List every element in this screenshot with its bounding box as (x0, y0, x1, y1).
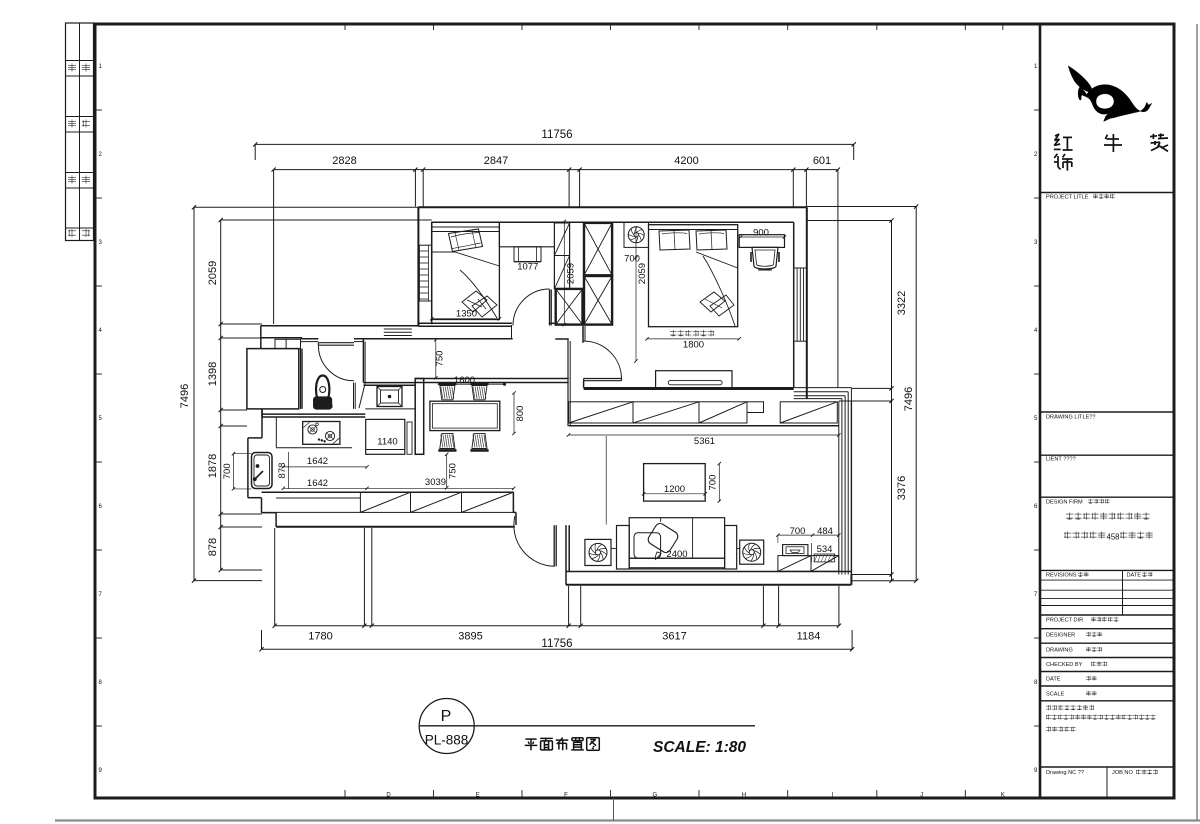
svg-text:K: K (1001, 793, 1005, 799)
svg-text:1200: 1200 (664, 484, 685, 495)
svg-text:5361: 5361 (694, 436, 715, 447)
svg-text:1642: 1642 (307, 478, 328, 489)
svg-text:Drawing NC ??: Drawing NC ?? (1046, 770, 1084, 776)
svg-text:CHECKED BY: CHECKED BY (1046, 662, 1083, 668)
svg-text:G: G (652, 793, 657, 799)
svg-text:7496: 7496 (903, 387, 915, 411)
svg-text:PL-888: PL-888 (425, 733, 469, 748)
svg-text:DATE: DATE (1046, 677, 1061, 683)
svg-text:DATE: DATE (1127, 573, 1142, 579)
svg-text:2059: 2059 (637, 263, 648, 284)
svg-text:SCALE: 1:80: SCALE: 1:80 (653, 739, 746, 756)
svg-text:700: 700 (708, 475, 719, 491)
svg-text:750: 750 (435, 351, 446, 367)
svg-text:DESIGNER: DESIGNER (1046, 633, 1075, 639)
svg-text:DRAWING: DRAWING (1046, 648, 1073, 654)
svg-text:P: P (441, 708, 452, 725)
svg-text:700: 700 (222, 463, 233, 479)
svg-text:750: 750 (448, 463, 459, 479)
svg-text:2059: 2059 (207, 261, 219, 285)
svg-text:JOB NO: JOB NO (1112, 770, 1133, 776)
svg-text:2059: 2059 (566, 263, 577, 284)
svg-text:534: 534 (817, 544, 833, 555)
svg-text:PROJECT DIR: PROJECT DIR (1046, 618, 1083, 624)
svg-text:700: 700 (624, 254, 640, 265)
svg-text:F: F (564, 793, 568, 799)
svg-text:LIENT ????: LIENT ???? (1046, 457, 1076, 463)
svg-text:2400: 2400 (666, 549, 687, 560)
svg-text:1642: 1642 (307, 456, 328, 467)
svg-text:J: J (920, 793, 923, 799)
svg-text:DESIGN FIRM: DESIGN FIRM (1046, 500, 1083, 506)
svg-text:7496: 7496 (179, 384, 191, 408)
svg-text:800: 800 (515, 406, 526, 422)
svg-text:878: 878 (207, 538, 219, 556)
svg-text:2828: 2828 (332, 155, 356, 167)
svg-text:3617: 3617 (662, 631, 686, 643)
svg-text:3376: 3376 (896, 476, 908, 500)
svg-text:1800: 1800 (683, 340, 704, 351)
svg-text:1780: 1780 (308, 631, 332, 643)
svg-text:1184: 1184 (797, 631, 821, 643)
svg-text:1398: 1398 (207, 362, 219, 386)
svg-text:11756: 11756 (541, 129, 572, 141)
svg-text:REVISIONS: REVISIONS (1046, 573, 1077, 579)
svg-text:601: 601 (813, 155, 831, 167)
svg-text:D: D (386, 793, 391, 799)
svg-text:PROJECT LITLE: PROJECT LITLE (1046, 195, 1089, 201)
svg-text:4200: 4200 (674, 155, 698, 167)
svg-text:458: 458 (1107, 533, 1120, 542)
svg-text:2847: 2847 (484, 155, 508, 167)
svg-text:1350: 1350 (456, 309, 477, 320)
svg-text:878: 878 (277, 463, 288, 479)
svg-text:1878: 1878 (207, 454, 219, 478)
svg-text:3322: 3322 (896, 291, 908, 315)
svg-text:3039: 3039 (425, 477, 446, 488)
svg-text:DRAWING LITLE??: DRAWING LITLE?? (1046, 415, 1096, 421)
svg-text:E: E (476, 793, 480, 799)
svg-text:11756: 11756 (541, 638, 572, 650)
svg-text:3895: 3895 (458, 631, 482, 643)
svg-text:H: H (742, 793, 746, 799)
svg-text:1140: 1140 (377, 436, 397, 447)
svg-text:SCALE: SCALE (1046, 692, 1065, 698)
svg-text:1077: 1077 (517, 261, 538, 272)
